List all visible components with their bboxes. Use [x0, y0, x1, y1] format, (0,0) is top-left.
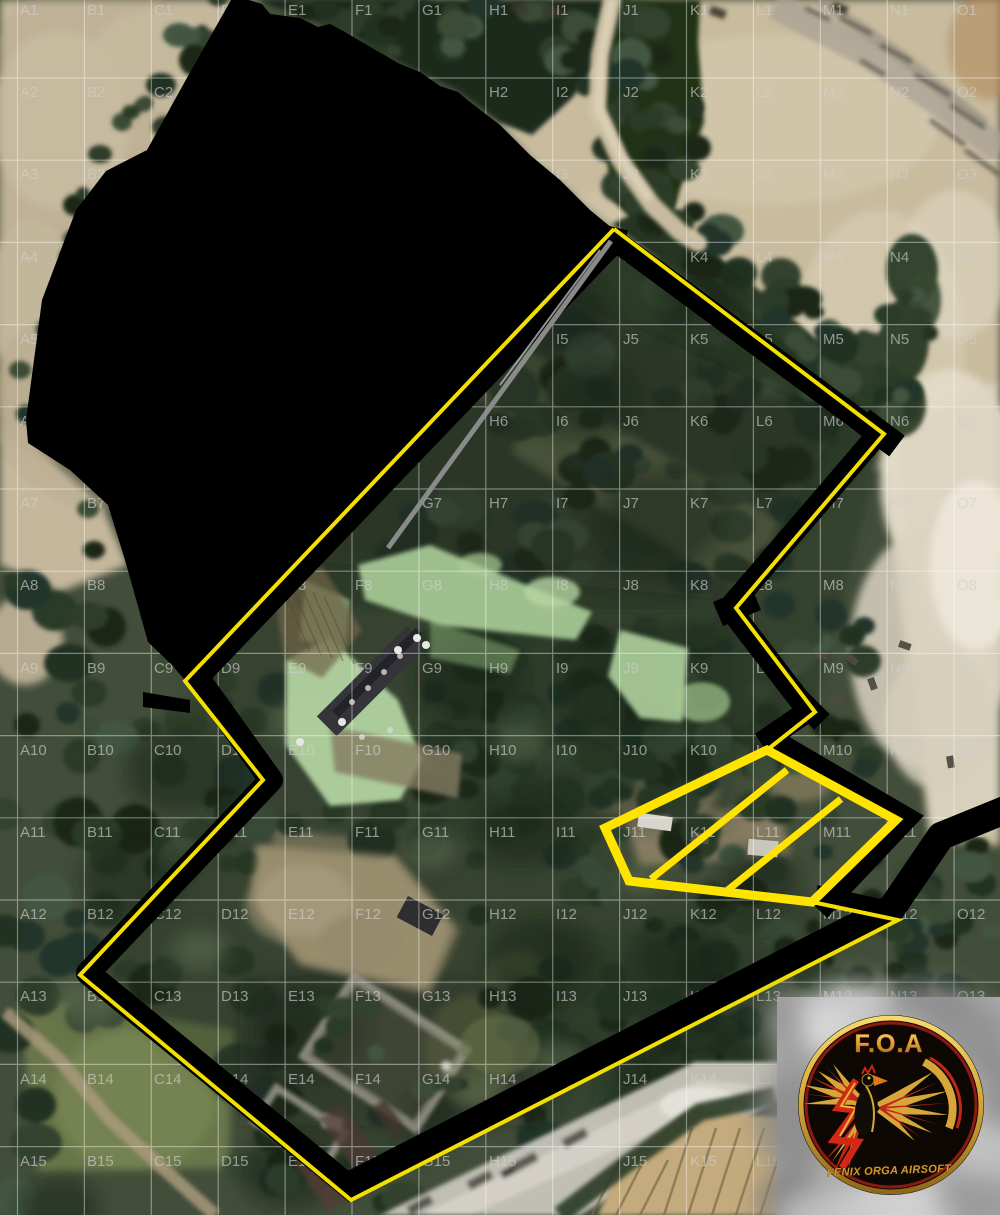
svg-text:K7: K7 — [690, 495, 708, 512]
svg-text:I6: I6 — [556, 413, 569, 430]
svg-text:K3: K3 — [690, 166, 708, 183]
svg-text:F13: F13 — [355, 988, 381, 1005]
svg-text:L6: L6 — [756, 413, 773, 430]
svg-text:K15: K15 — [690, 1153, 717, 1170]
svg-text:J5: J5 — [623, 331, 639, 348]
svg-text:C14: C14 — [154, 1071, 182, 1088]
svg-text:A5: A5 — [20, 331, 38, 348]
svg-text:B10: B10 — [87, 742, 114, 759]
svg-text:C10: C10 — [154, 742, 182, 759]
svg-text:N10: N10 — [890, 742, 918, 759]
svg-text:O10: O10 — [957, 742, 985, 759]
svg-text:O3: O3 — [957, 166, 977, 183]
svg-text:B11: B11 — [87, 824, 113, 841]
svg-text:N8: N8 — [890, 577, 909, 594]
svg-text:B12: B12 — [87, 906, 114, 923]
svg-text:K8: K8 — [690, 577, 708, 594]
svg-text:C11: C11 — [154, 824, 180, 841]
svg-text:I13: I13 — [556, 988, 577, 1005]
svg-text:H10: H10 — [489, 742, 517, 759]
svg-text:O7: O7 — [957, 495, 977, 512]
svg-text:I8: I8 — [556, 577, 569, 594]
svg-text:A9: A9 — [20, 660, 38, 677]
svg-text:K4: K4 — [690, 249, 708, 266]
svg-text:B8: B8 — [87, 577, 105, 594]
svg-text:I11: I11 — [556, 824, 576, 841]
svg-text:K2: K2 — [690, 84, 708, 101]
svg-text:E13: E13 — [288, 988, 315, 1005]
svg-text:I9: I9 — [556, 660, 569, 677]
svg-text:H12: H12 — [489, 906, 517, 923]
svg-text:L3: L3 — [756, 166, 773, 183]
svg-text:O5: O5 — [957, 331, 977, 348]
svg-text:E14: E14 — [288, 1071, 315, 1088]
svg-text:K10: K10 — [690, 742, 717, 759]
svg-text:M9: M9 — [823, 660, 844, 677]
svg-text:M11: M11 — [823, 824, 851, 841]
svg-text:G13: G13 — [422, 988, 450, 1005]
svg-text:H8: H8 — [489, 577, 508, 594]
svg-text:F10: F10 — [355, 742, 381, 759]
svg-text:B2: B2 — [87, 84, 105, 101]
svg-text:M3: M3 — [823, 166, 844, 183]
svg-text:B1: B1 — [87, 2, 105, 19]
svg-text:K14: K14 — [690, 1071, 717, 1088]
svg-text:I1: I1 — [556, 2, 569, 19]
svg-text:E1: E1 — [288, 2, 306, 19]
svg-text:E9: E9 — [288, 660, 306, 677]
svg-text:N5: N5 — [890, 331, 909, 348]
svg-text:H14: H14 — [489, 1071, 517, 1088]
svg-text:J9: J9 — [623, 660, 639, 677]
svg-text:F1: F1 — [355, 2, 373, 19]
svg-text:A2: A2 — [20, 84, 38, 101]
svg-text:O2: O2 — [957, 84, 977, 101]
svg-text:J15: J15 — [623, 1153, 647, 1170]
svg-text:J11: J11 — [623, 824, 646, 841]
svg-text:O8: O8 — [957, 577, 977, 594]
svg-text:M5: M5 — [823, 331, 844, 348]
svg-text:A13: A13 — [20, 988, 47, 1005]
svg-text:C13: C13 — [154, 988, 182, 1005]
svg-text:M4: M4 — [823, 249, 844, 266]
svg-text:F14: F14 — [355, 1071, 381, 1088]
svg-text:G8: G8 — [422, 577, 442, 594]
svg-text:N1: N1 — [890, 2, 909, 19]
svg-text:J6: J6 — [623, 413, 639, 430]
svg-text:O1: O1 — [957, 2, 977, 19]
svg-text:B14: B14 — [87, 1071, 114, 1088]
svg-text:O9: O9 — [957, 660, 977, 677]
svg-text:M2: M2 — [823, 84, 844, 101]
svg-text:J12: J12 — [623, 906, 647, 923]
svg-text:C2: C2 — [154, 84, 173, 101]
svg-text:L7: L7 — [756, 495, 773, 512]
svg-text:K5: K5 — [690, 331, 708, 348]
svg-text:N2: N2 — [890, 84, 909, 101]
svg-text:D13: D13 — [221, 988, 249, 1005]
svg-text:L12: L12 — [756, 906, 781, 923]
svg-text:I15: I15 — [556, 1153, 577, 1170]
svg-text:M1: M1 — [823, 2, 844, 19]
svg-text:M8: M8 — [823, 577, 844, 594]
svg-text:I10: I10 — [556, 742, 577, 759]
svg-text:A15: A15 — [20, 1153, 47, 1170]
svg-text:F.O.A: F.O.A — [855, 1030, 924, 1058]
svg-text:M10: M10 — [823, 742, 852, 759]
svg-text:H15: H15 — [489, 1153, 517, 1170]
svg-text:O12: O12 — [957, 906, 985, 923]
svg-text:F8: F8 — [355, 577, 373, 594]
svg-text:J3: J3 — [623, 166, 639, 183]
svg-text:H13: H13 — [489, 988, 517, 1005]
svg-text:D15: D15 — [221, 1153, 249, 1170]
svg-text:G12: G12 — [422, 906, 450, 923]
svg-text:I12: I12 — [556, 906, 577, 923]
svg-text:G9: G9 — [422, 660, 442, 677]
svg-text:A3: A3 — [20, 166, 38, 183]
svg-text:E11: E11 — [288, 824, 314, 841]
svg-text:C15: C15 — [154, 1153, 182, 1170]
svg-text:D12: D12 — [221, 906, 249, 923]
svg-text:K6: K6 — [690, 413, 708, 430]
svg-text:I7: I7 — [556, 495, 569, 512]
svg-text:A4: A4 — [20, 249, 38, 266]
svg-text:N9: N9 — [890, 660, 909, 677]
svg-text:B15: B15 — [87, 1153, 114, 1170]
svg-text:A12: A12 — [20, 906, 47, 923]
svg-text:F11: F11 — [355, 824, 380, 841]
svg-text:H7: H7 — [489, 495, 508, 512]
svg-text:L4: L4 — [756, 249, 773, 266]
svg-text:J1: J1 — [623, 2, 639, 19]
svg-text:K12: K12 — [690, 906, 717, 923]
svg-text:J2: J2 — [623, 84, 639, 101]
svg-text:A1: A1 — [20, 2, 38, 19]
svg-text:B9: B9 — [87, 660, 105, 677]
svg-text:H6: H6 — [489, 413, 508, 430]
svg-text:F12: F12 — [355, 906, 381, 923]
svg-text:G14: G14 — [422, 1071, 450, 1088]
svg-text:J13: J13 — [623, 988, 647, 1005]
svg-text:G1: G1 — [422, 2, 442, 19]
svg-text:N7: N7 — [890, 495, 909, 512]
svg-text:J7: J7 — [623, 495, 639, 512]
svg-text:J14: J14 — [623, 1071, 647, 1088]
svg-text:A14: A14 — [20, 1071, 47, 1088]
svg-text:O6: O6 — [957, 413, 977, 430]
svg-text:E10: E10 — [288, 742, 315, 759]
svg-text:N4: N4 — [890, 249, 909, 266]
svg-text:E12: E12 — [288, 906, 315, 923]
svg-text:F9: F9 — [355, 660, 373, 677]
svg-text:A7: A7 — [20, 495, 38, 512]
svg-text:H9: H9 — [489, 660, 508, 677]
svg-text:H2: H2 — [489, 84, 508, 101]
svg-text:L11: L11 — [756, 824, 780, 841]
svg-text:I2: I2 — [556, 84, 569, 101]
svg-text:L2: L2 — [756, 84, 773, 101]
svg-text:N3: N3 — [890, 166, 909, 183]
svg-text:I5: I5 — [556, 331, 569, 348]
svg-text:G11: G11 — [422, 824, 449, 841]
svg-text:A10: A10 — [20, 742, 47, 759]
svg-text:K1: K1 — [690, 2, 708, 19]
svg-text:C1: C1 — [154, 2, 173, 19]
svg-text:A8: A8 — [20, 577, 38, 594]
svg-text:O4: O4 — [957, 249, 977, 266]
svg-text:J10: J10 — [623, 742, 647, 759]
svg-text:A11: A11 — [20, 824, 46, 841]
svg-text:G10: G10 — [422, 742, 450, 759]
svg-text:H1: H1 — [489, 2, 508, 19]
svg-text:L1: L1 — [756, 2, 773, 19]
svg-text:H11: H11 — [489, 824, 515, 841]
svg-text:K9: K9 — [690, 660, 708, 677]
svg-text:J8: J8 — [623, 577, 639, 594]
